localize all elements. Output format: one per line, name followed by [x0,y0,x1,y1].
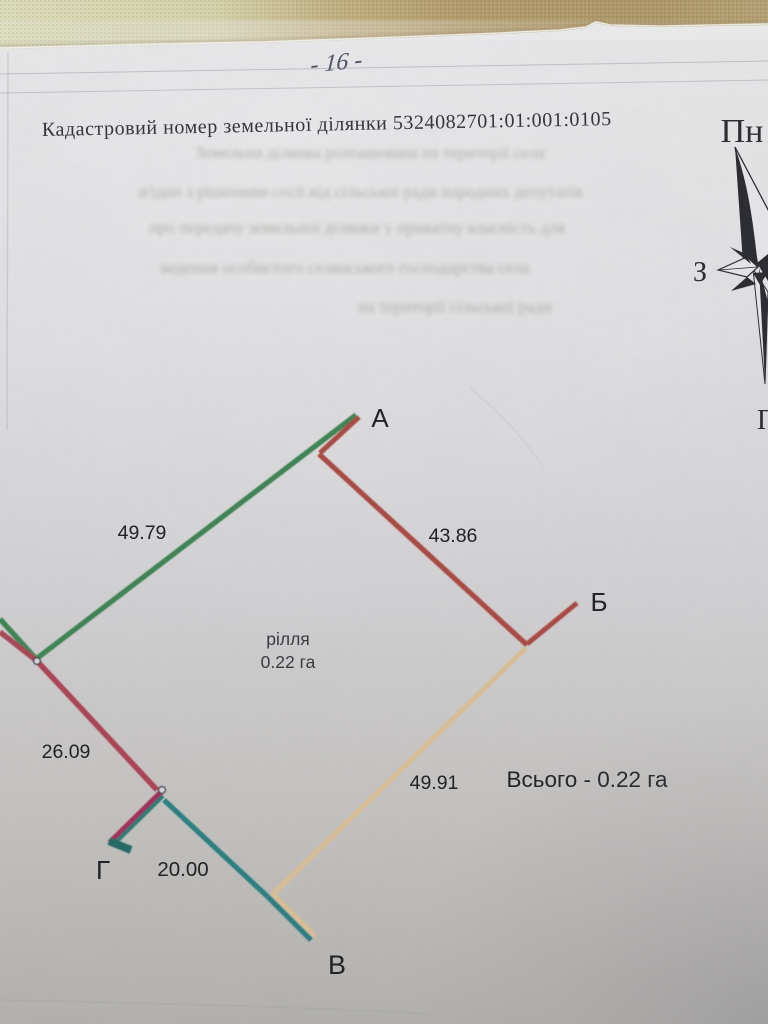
svg-text:В: В [328,950,346,980]
svg-text:Земельна ділянка розташована н: Земельна ділянка розташована на територі… [195,143,545,162]
svg-text:49.79: 49.79 [118,522,167,544]
svg-text:рілля: рілля [266,629,310,649]
svg-text:Пн: Пн [721,113,764,150]
svg-text:20.00: 20.00 [157,858,208,881]
svg-text:А: А [371,403,389,433]
svg-text:згідно з рішенням сесії від сі: згідно з рішенням сесії від сільської ра… [137,182,583,201]
svg-text:26.09: 26.09 [42,741,91,763]
svg-text:на території сільської ради: на території сільської ради [358,297,552,316]
svg-text:0.22 га: 0.22 га [261,652,316,672]
svg-text:- 16 -: - 16 - [310,46,364,79]
svg-text:З: З [693,257,707,288]
svg-text:Г: Г [96,855,110,885]
svg-text:43.86: 43.86 [429,525,478,547]
svg-text:про передачу земельної ділянки: про передачу земельної ділянки у приватн… [149,218,565,237]
svg-text:Пд: Пд [757,405,768,436]
svg-text:Б: Б [590,587,607,617]
svg-text:ведення особистого селянського: ведення особистого селянського господарс… [161,258,530,277]
